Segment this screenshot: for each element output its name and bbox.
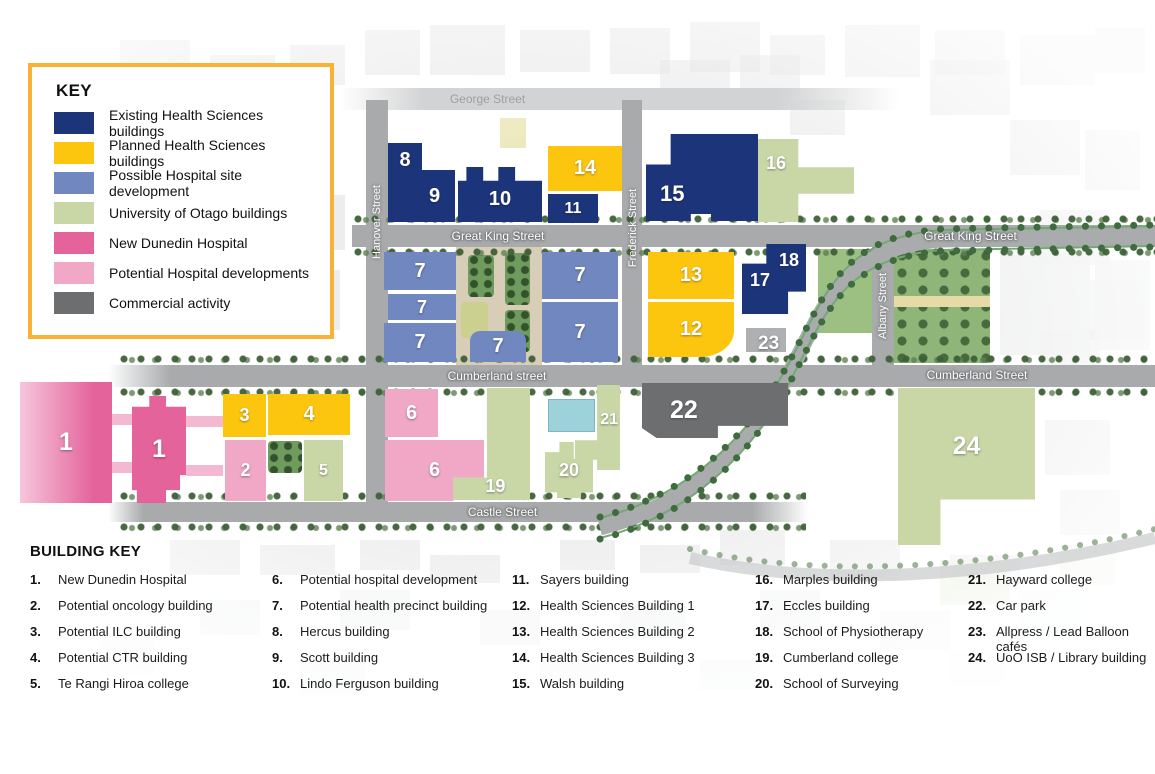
legend-swatch-planned [54,142,94,164]
cumberland-street-label: Cumberland street [442,369,552,383]
building-key-column-5: 21.Hayward college 22.Car park 23.Allpre… [968,572,1155,676]
cumberland-street-label-right: Cumberland Street [918,368,1036,382]
building-11: 11 [548,194,598,223]
building-key-entry: 11.Sayers building [512,572,695,598]
legend-title: KEY [56,81,312,101]
building-key-entry: 4.Potential CTR building [30,650,213,676]
building-key-column-1: 1.New Dunedin Hospital 2.Potential oncol… [30,572,213,702]
swimming-pool [548,399,595,432]
building-key-entry: 14.Health Sciences Building 3 [512,650,695,676]
building-key-title: BUILDING KEY [30,543,141,560]
building-key-entry: 1.New Dunedin Hospital [30,572,213,598]
plaza-trees [505,253,530,305]
building-key-entry: 19.Cumberland college [755,650,923,676]
building-7-label: 7 [414,331,425,354]
building-key-entry: 16.Marples building [755,572,923,598]
link-bridge [112,462,132,473]
george-street [340,88,900,110]
legend-item: University of Otago buildings [54,201,312,224]
legend-label: Commercial activity [109,295,230,311]
legend-label: Possible Hospital site development [109,167,312,199]
building-7-a: 7 [384,252,456,290]
tree-row [118,355,1155,364]
building-7-label: 7 [414,260,425,283]
building-key-entry: 22.Car park [968,598,1155,624]
albany-street-label: Albany Street [877,273,889,339]
building-key-entry: 3.Potential ILC building [30,624,213,650]
building-15-label: 15 [660,181,684,207]
building-7-label: 7 [417,297,427,318]
building-key-column-3: 11.Sayers building 12.Health Sciences Bu… [512,572,695,702]
building-13-label: 13 [680,264,702,287]
building-key-column-4: 16.Marples building 17.Eccles building 1… [755,572,923,702]
building-11-label: 11 [565,200,582,218]
building-12-label: 12 [680,318,702,341]
building-key-entry: 23.Allpress / Lead Balloon cafés [968,624,1155,650]
legend-label: Planned Health Sciences buildings [109,137,312,169]
building-4-label: 4 [303,403,314,426]
building-12: 12 [648,302,734,357]
building-1-east: 1 [132,396,186,503]
building-9: 9 [414,170,455,222]
building-17-label: 17 [750,270,770,291]
building-24-label: 24 [953,432,981,461]
legend-swatch-new-hospital [54,232,94,254]
legend-item: Existing Health Sciences buildings [54,111,312,134]
building-7-label: 7 [574,264,585,287]
building-key-entry: 7.Potential health precinct building [272,598,487,624]
building-16-label: 16 [766,153,786,174]
courtyard-trees [268,441,302,473]
legend: KEY Existing Health Sciences buildings P… [28,63,334,339]
plaza-trees [468,255,494,297]
frederick-street-label: Frederick Street [627,189,639,267]
legend-swatch-potential [54,262,94,284]
building-7-c: 7 [384,323,456,362]
building-key-entry: 13.Health Sciences Building 2 [512,624,695,650]
park-path [894,296,990,307]
building-key-entry: 18.School of Physiotherapy [755,624,923,650]
building-7-label: 7 [574,321,585,344]
building-6-north: 6 [385,389,438,437]
building-14: 14 [548,146,622,191]
building-key-entry: 8.Hercus building [272,624,487,650]
building-7-e: 7 [542,252,618,299]
building-1-west: 1 [20,382,112,503]
building-23-label: 23 [758,333,779,355]
great-king-street-label: Great King Street [448,229,548,243]
legend-item: Planned Health Sciences buildings [54,141,312,164]
building-key-entry: 2.Potential oncology building [30,598,213,624]
building-20-label: 20 [559,460,579,481]
building-key-entry: 21.Hayward college [968,572,1155,598]
castle-street-label: Castle Street [450,505,555,519]
building-key-entry: 15.Walsh building [512,676,695,702]
legend-label: University of Otago buildings [109,205,287,221]
legend-swatch-commercial [54,292,94,314]
small-park [818,249,872,333]
building-7-label: 7 [492,335,503,358]
building-2-label: 2 [240,460,250,481]
building-14-label: 14 [574,157,596,180]
building-1-label: 1 [152,435,166,464]
building-18-label: 18 [779,250,799,271]
building-22-label: 22 [670,396,698,425]
building-key-column-2: 6.Potential hospital development 7.Poten… [272,572,487,702]
building-7-b: 7 [388,294,456,320]
george-street-label: George Street [430,92,545,106]
building-2: 2 [225,440,266,501]
legend-swatch-possible [54,172,94,194]
legend-label: Potential Hospital developments [109,265,309,281]
building-3: 3 [223,394,266,437]
building-8-label: 8 [399,149,410,172]
building-13: 13 [648,252,734,299]
tree-row [118,523,806,532]
building-3-label: 3 [239,405,249,426]
building-key-entry: 17.Eccles building [755,598,923,624]
building-key-entry: 12.Health Sciences Building 1 [512,598,695,624]
legend-item: Potential Hospital developments [54,261,312,284]
campus-map: 8 9 10 11 15 18 17 14 13 12 3 4 7 7 7 7 … [0,0,1155,774]
building-9-label: 9 [429,185,440,208]
building-5-label: 5 [319,462,328,480]
building-21-label: 21 [600,411,618,429]
building-7-d: 7 [470,331,526,362]
link-bridge [112,414,132,425]
building-10-label: 10 [489,188,511,211]
building-key-entry: 6.Potential hospital development [272,572,487,598]
building-key-entry: 10.Lindo Ferguson building [272,676,487,702]
building-6-label: 6 [429,459,440,482]
building-19-label: 19 [485,476,505,497]
building-key-entry: 24.UoO ISB / Library building [968,650,1155,676]
legend-item: Possible Hospital site development [54,171,312,194]
legend-label: New Dunedin Hospital [109,235,248,251]
legend-item: New Dunedin Hospital [54,231,312,254]
legend-swatch-existing [54,112,94,134]
tree-row [352,248,1155,257]
building-key-entry: 9.Scott building [272,650,487,676]
building-5: 5 [304,440,343,501]
building-4: 4 [268,394,350,435]
building-7-f: 7 [542,302,618,362]
hanover-street [366,100,388,522]
legend-swatch-otago [54,202,94,224]
link-bridge [186,465,223,476]
hanover-street-label: Hanover Street [371,185,383,259]
building-6-label: 6 [406,402,417,425]
link-bridge [186,416,223,427]
building-key-entry: 20.School of Surveying [755,676,923,702]
legend-item: Commercial activity [54,291,312,314]
legend-label: Existing Health Sciences buildings [109,107,312,139]
great-king-street-label-right: Great King Street [918,229,1023,243]
building-1-label: 1 [59,428,73,457]
building-key-entry: 5.Te Rangi Hiroa college [30,676,213,702]
